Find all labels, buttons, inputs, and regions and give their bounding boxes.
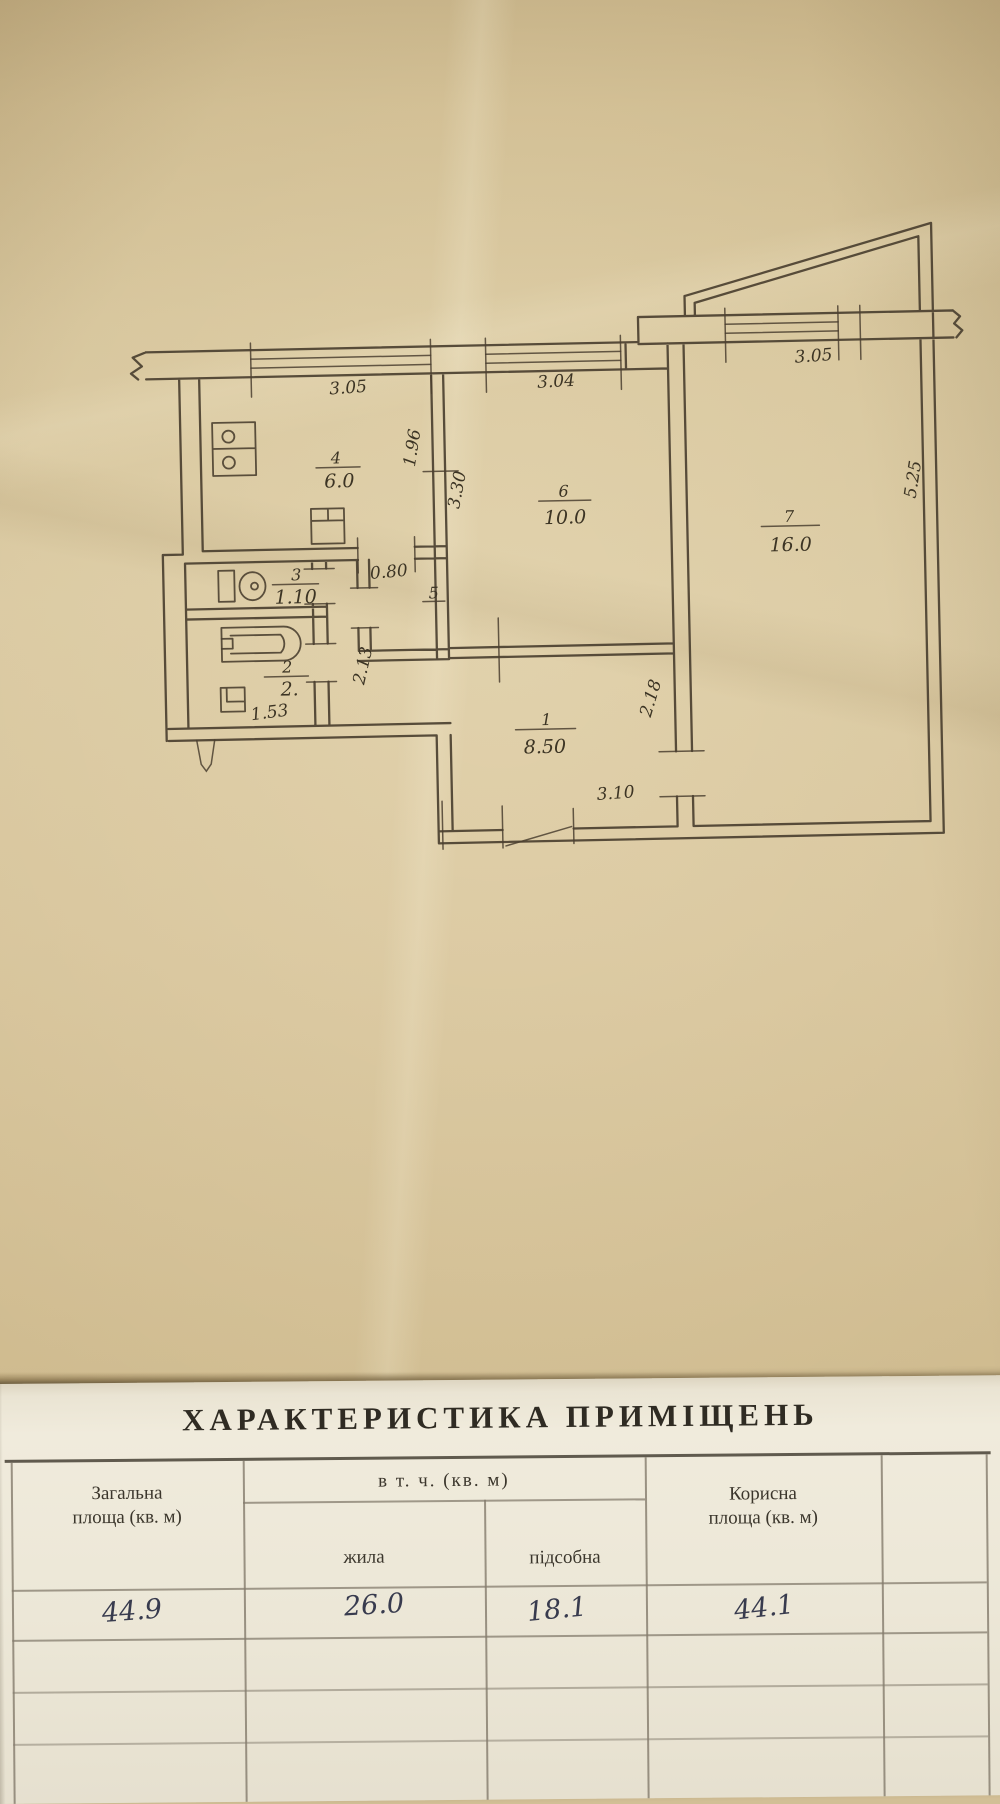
room-hall-area: 8.50	[524, 736, 567, 759]
room-7-number: 7	[784, 507, 795, 526]
table-vline	[243, 1461, 247, 1802]
characteristics-table-sheet: ХАРАКТЕРИСТИКА ПРИМІЩЕНЬ Загальна площа …	[0, 1375, 1000, 1804]
table-vline	[986, 1454, 990, 1795]
toilet-icon	[218, 570, 266, 602]
room-kitchen-area: 6.0	[324, 470, 355, 493]
dim-window-left: 3.05	[328, 377, 367, 400]
dim-bath-wall: 2.13	[349, 645, 377, 687]
value-living-area: 26.0	[301, 1585, 447, 1625]
dim-bath-width: 1.53	[250, 701, 290, 726]
value-auxiliary-area: 18.1	[496, 1588, 618, 1630]
dim-kitchen-depth: 1.96	[400, 428, 426, 469]
room-hall-number: 1	[541, 710, 552, 729]
room-bath-area: 2.	[279, 678, 299, 700]
room-6-area: 10.0	[544, 506, 587, 529]
table-vline	[11, 1463, 15, 1804]
table-vline	[881, 1455, 885, 1796]
dim-hall-width: 3.10	[596, 782, 635, 805]
value-total-area: 44.9	[61, 1590, 203, 1632]
table-vline	[484, 1500, 488, 1800]
room-toilet-number: 3	[291, 565, 302, 584]
header-group: в т. ч. (кв. м)	[243, 1467, 645, 1495]
dim-room7-depth: 5.25	[901, 459, 927, 499]
room-6-number: 6	[558, 482, 569, 501]
photographed-floor-plan-document: { "plan": { "rooms": { "kitchen": {"num"…	[0, 0, 1000, 1776]
table-grid: Загальна площа (кв. м) в т. ч. (кв. м) ж…	[0, 1454, 1000, 1804]
row-line	[12, 1631, 987, 1641]
floor-plan-drawing: 4 6.0 6 10.0 7 16.0 3 1.10 2 2. 1 8.50 5…	[0, 0, 1000, 1382]
room-toilet-area: 1.10	[274, 586, 317, 609]
room-closet-number: 5	[428, 583, 439, 602]
header-auxiliary: підсобна	[484, 1545, 645, 1571]
header-total-area: Загальна площа (кв. м)	[72, 1481, 182, 1531]
kitchen-sink-icon	[311, 508, 345, 544]
header-bottom-line	[12, 1581, 987, 1591]
dim-kitchen-door: 0.80	[369, 561, 409, 584]
header-living: жила	[243, 1545, 484, 1571]
row-line	[13, 1683, 988, 1693]
dim-hall-wall: 2.18	[636, 677, 666, 720]
room-kitchen-number: 4	[330, 448, 342, 467]
stove-icon	[212, 422, 256, 476]
row-line	[13, 1735, 988, 1745]
room-bath-number: 2	[281, 657, 293, 676]
table-vline	[645, 1457, 649, 1798]
room-7-area: 16.0	[769, 533, 812, 556]
group-underline	[243, 1498, 645, 1503]
header-useful-area: Корисна площа (кв. м)	[708, 1482, 818, 1532]
bathroom-sink-icon	[221, 687, 245, 711]
dim-window-mid: 3.04	[537, 371, 576, 393]
value-useful-area: 44.1	[701, 1585, 828, 1630]
table-title: ХАРАКТЕРИСТИКА ПРИМІЩЕНЬ	[0, 1395, 1000, 1440]
dim-window-right: 3.05	[794, 345, 833, 368]
dim-room6-depth: 3.30	[444, 469, 471, 510]
